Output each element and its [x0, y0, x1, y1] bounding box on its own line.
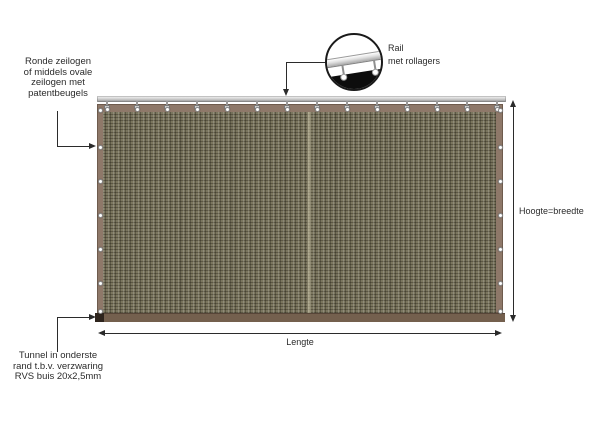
right-eyelet [498, 213, 503, 218]
top-eyelet [405, 107, 410, 112]
left-eyelet [98, 309, 103, 314]
left-eyelet [98, 145, 103, 150]
left-eyelet [98, 281, 103, 286]
left-eyelet [98, 108, 103, 113]
left-eyelet [98, 247, 103, 252]
hardware-layer [0, 0, 600, 424]
rail-detail-content [325, 33, 383, 91]
top-eyelet [315, 107, 320, 112]
right-eyelet [498, 145, 503, 150]
left-eyelet [98, 179, 103, 184]
top-eyelet [345, 107, 350, 112]
top-eyelet [135, 107, 140, 112]
diagram-canvas: Ronde zeilogen of middels ovale zeilogen… [0, 0, 600, 424]
top-eyelet [225, 107, 230, 112]
right-eyelet [498, 281, 503, 286]
right-eyelet [498, 108, 503, 113]
top-eyelet [255, 107, 260, 112]
top-eyelet [105, 107, 110, 112]
right-eyelet [498, 179, 503, 184]
top-eyelet [375, 107, 380, 112]
right-eyelet [498, 309, 503, 314]
right-eyelet [498, 247, 503, 252]
top-eyelet [435, 107, 440, 112]
rail-detail-circle [325, 33, 383, 91]
top-eyelet [285, 107, 290, 112]
top-eyelet [165, 107, 170, 112]
left-eyelet [98, 213, 103, 218]
top-eyelet [195, 107, 200, 112]
top-eyelet [465, 107, 470, 112]
